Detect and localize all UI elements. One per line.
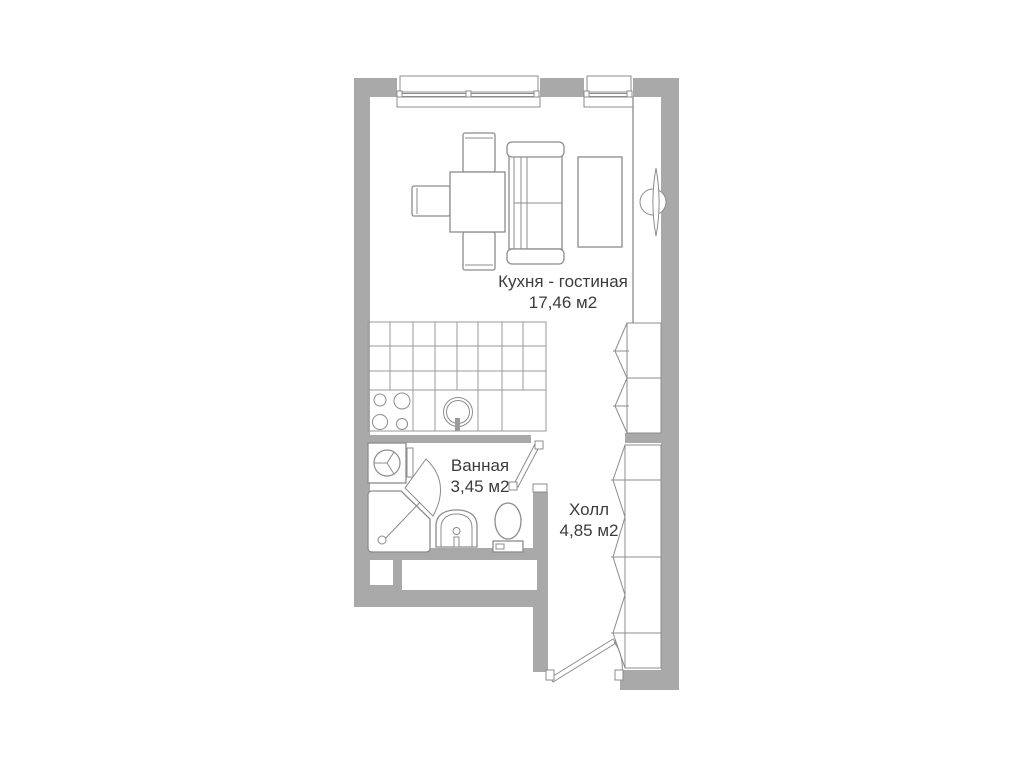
- kitchen-sink: [444, 398, 473, 432]
- chair-top: [463, 133, 495, 172]
- tv-stand: [578, 157, 622, 247]
- bathroom-door: [509, 441, 547, 492]
- toilet: [493, 503, 523, 552]
- chair-bottom: [463, 232, 495, 270]
- room-area: 3,45 м2: [451, 476, 510, 497]
- hall-wardrobe: [611, 445, 661, 668]
- window-small: [584, 76, 633, 107]
- stove-burners: [373, 393, 411, 430]
- sofa: [507, 142, 564, 264]
- kitchen-closet: [613, 323, 661, 433]
- floor-plan-drawing: [0, 0, 1024, 768]
- washing-machine: [368, 443, 413, 483]
- room-name: Холл: [560, 499, 619, 520]
- room-label-kitchen-living: Кухня - гостиная 17,46 м2: [498, 271, 628, 313]
- chair-left: [412, 186, 450, 216]
- room-name: Кухня - гостиная: [498, 271, 628, 292]
- entrance-door: [546, 639, 623, 682]
- floor-plan-page: Кухня - гостиная 17,46 м2 Ванная 3,45 м2…: [0, 0, 1024, 768]
- window-large: [397, 76, 540, 107]
- washbasin: [436, 510, 477, 547]
- room-label-bathroom: Ванная 3,45 м2: [451, 455, 510, 497]
- kitchen-cabinets-grid: [368, 322, 546, 390]
- room-area: 17,46 м2: [498, 292, 628, 313]
- room-label-hall: Холл 4,85 м2: [560, 499, 619, 541]
- dining-table: [450, 172, 505, 232]
- room-area: 4,85 м2: [560, 520, 619, 541]
- room-name: Ванная: [451, 455, 510, 476]
